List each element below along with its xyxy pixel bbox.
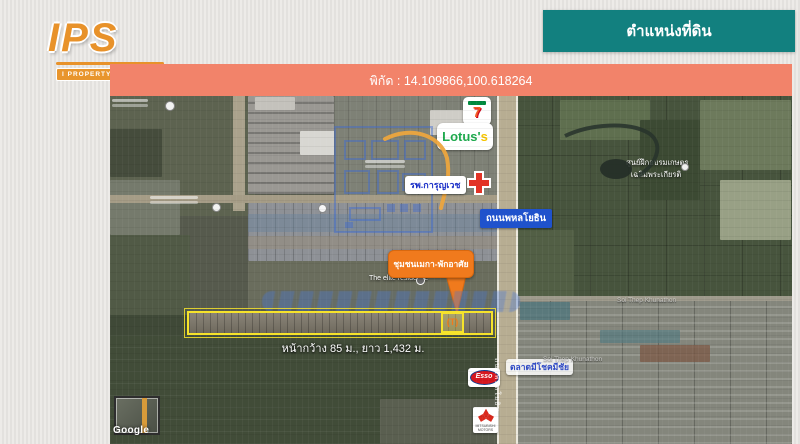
- hospital-label: รพ.การุญเวช: [405, 176, 466, 194]
- slide: IPS I PROPERTY SERVICE ⌂ ตำแหน่งที่ดิน พ…: [0, 0, 800, 444]
- satellite-map: 7 Lotus's รพ.การุญเวช ถนนพหลโยธิน ถนนพหล…: [110, 96, 792, 444]
- coordinates-text: พิกัด : 14.109866,100.618264: [370, 71, 533, 91]
- road-label-vertical: ถนนพหลโยธิน: [491, 358, 502, 412]
- title-banner: ตำแหน่งที่ดิน: [543, 10, 795, 52]
- land-marker: (T): [441, 312, 464, 333]
- dimension-label: หน้ากว้าง 85 ม., ยาว 1,432 ม.: [243, 339, 463, 357]
- road-label-phahonyothin: ถนนพหลโยธิน: [480, 209, 552, 228]
- watermark-text-strip: [262, 291, 520, 312]
- property-callout: ชุมชนเมกา-พักอาศัย: [388, 250, 474, 278]
- page-title: ตำแหน่งที่ดิน: [626, 19, 711, 43]
- google-watermark: Google: [113, 425, 149, 436]
- coordinates-banner: พิกัด : 14.109866,100.618264: [110, 64, 792, 97]
- ips-logo-text: IPS: [48, 16, 178, 60]
- hospital-cross-icon: [465, 169, 493, 197]
